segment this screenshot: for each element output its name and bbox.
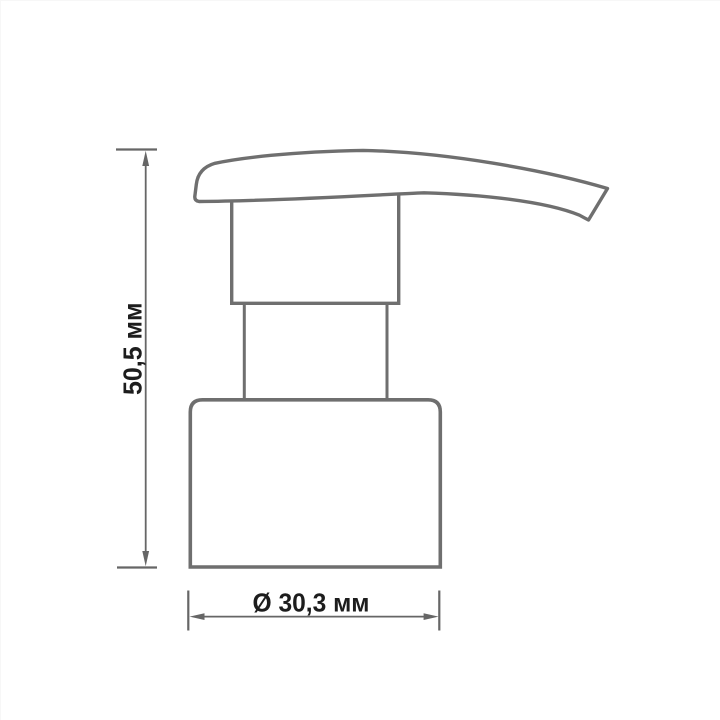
svg-text:Ø 30,3 мм: Ø 30,3 мм [253, 588, 370, 618]
svg-text:50,5 мм: 50,5 мм [118, 303, 148, 396]
